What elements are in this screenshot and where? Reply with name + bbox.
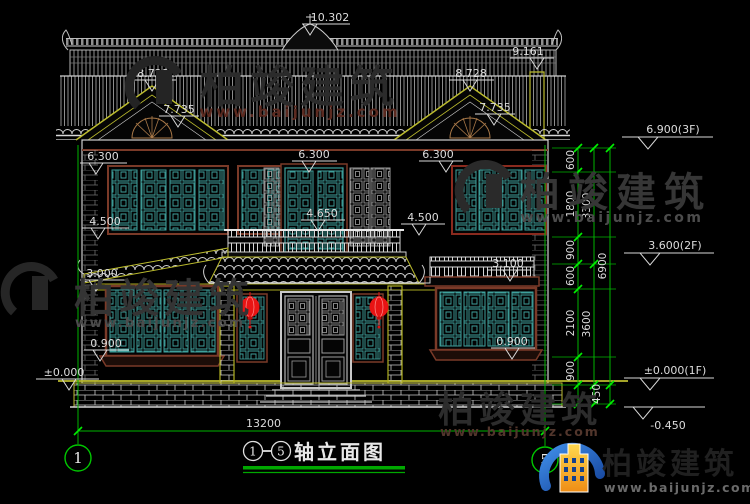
svg-text:6.300: 6.300 xyxy=(298,148,330,161)
cad-viewport: 13200 1 5 600 1800 900 600 2100 900 450 … xyxy=(0,0,750,504)
svg-text:4.650: 4.650 xyxy=(306,207,338,220)
svg-text:±0.000(1F): ±0.000(1F) xyxy=(644,364,707,377)
title-text: 轴立面图 xyxy=(294,440,386,464)
svg-text:3.100: 3.100 xyxy=(492,257,524,270)
overall-width-dim: 13200 xyxy=(246,417,281,430)
elevation-drawing: 13200 1 5 600 1800 900 600 2100 900 450 … xyxy=(0,0,750,504)
watermark-site: www.baijunjz.com xyxy=(75,315,245,331)
chain-seg-900b: 900 xyxy=(565,361,577,381)
chain-seg-2100: 2100 xyxy=(565,310,577,337)
svg-text:±0.000: ±0.000 xyxy=(44,366,85,379)
title-underline-thick xyxy=(243,466,405,470)
svg-text:4.500: 4.500 xyxy=(89,215,121,228)
window-2f-left xyxy=(108,166,228,234)
logo-building-windows xyxy=(564,458,584,481)
chain-seg-600b: 600 xyxy=(565,266,577,286)
svg-text:4.500: 4.500 xyxy=(407,211,439,224)
svg-text:9.161: 9.161 xyxy=(512,45,544,58)
chain-total-6900: 6900 xyxy=(597,253,609,280)
chain-seg-900a: 900 xyxy=(565,240,577,260)
chain-seg-600a: 600 xyxy=(565,150,577,170)
chain-sub-3600: 3600 xyxy=(581,311,593,338)
watermark-bottom: 柏竣建筑 www.baijunjz.com xyxy=(438,390,602,439)
axis-bubble-1-label: 1 xyxy=(73,449,83,467)
title-axis-from-label: 1 xyxy=(249,445,257,459)
logo-site-text: www.baijunjz.com xyxy=(604,480,750,495)
svg-text:0.900: 0.900 xyxy=(496,335,528,348)
svg-text:0.900: 0.900 xyxy=(90,337,122,350)
svg-text:10.302: 10.302 xyxy=(311,11,350,24)
svg-text:6.900(3F): 6.900(3F) xyxy=(646,123,699,136)
title-axis-to-label: 5 xyxy=(277,445,285,459)
svg-text:-0.450: -0.450 xyxy=(650,419,685,432)
watermark-site: www.baijunjz.com xyxy=(440,424,600,439)
svg-text:8.728: 8.728 xyxy=(455,67,487,80)
svg-text:7.735: 7.735 xyxy=(163,103,195,116)
watermark-site: www.baijunjz.com xyxy=(199,103,400,121)
brand-logo: 柏竣建筑 www.baijunjz.com xyxy=(544,444,750,495)
logo-brand-text: 柏竣建筑 xyxy=(602,447,738,482)
entry-door xyxy=(281,292,351,388)
balcony xyxy=(222,230,406,257)
window-1f-right-bay xyxy=(430,288,542,360)
svg-text:3.600(2F): 3.600(2F) xyxy=(648,239,701,252)
svg-text:6.300: 6.300 xyxy=(422,148,454,161)
svg-text:6.300: 6.300 xyxy=(87,150,119,163)
svg-text:7.735: 7.735 xyxy=(479,101,511,114)
watermark-site: www.baijunjz.com xyxy=(521,210,704,226)
column-right xyxy=(388,286,402,383)
